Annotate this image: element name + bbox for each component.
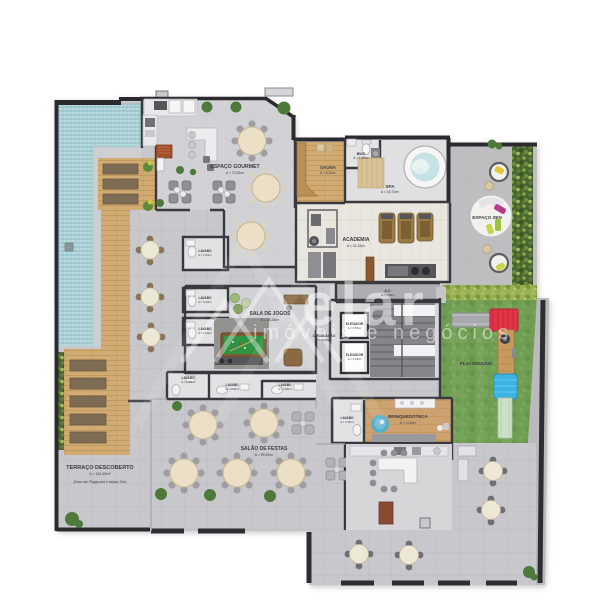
- svg-text:SPA: SPA: [386, 184, 396, 189]
- svg-text:A = 161,62m²: A = 161,62m²: [89, 472, 111, 476]
- svg-text:PLAYGROUND: PLAYGROUND: [460, 361, 493, 366]
- svg-text:A = 1,96m²: A = 1,96m²: [278, 387, 292, 391]
- svg-text:SALA DE JOGOS: SALA DE JOGOS: [250, 311, 292, 317]
- svg-text:A = 3,20m²: A = 3,20m²: [198, 300, 212, 304]
- svg-text:ACADEMIA: ACADEMIA: [343, 237, 370, 243]
- svg-text:BRINQUEDOTECA: BRINQUEDOTECA: [388, 414, 429, 419]
- svg-text:A = 1,96m²: A = 1,96m²: [353, 156, 369, 160]
- svg-text:A = 2,20m²: A = 2,20m²: [198, 331, 212, 335]
- svg-text:A = 1,55m²: A = 1,55m²: [340, 420, 354, 424]
- svg-text:ESPAÇO ZEN: ESPAÇO ZEN: [472, 215, 502, 220]
- svg-text:A = 1,59m²: A = 1,59m²: [181, 380, 195, 384]
- svg-text:A = 9,34m²: A = 9,34m²: [320, 171, 337, 175]
- svg-text:A = 1,84m²: A = 1,84m²: [198, 253, 212, 257]
- svg-text:A = 15,74m²: A = 15,74m²: [381, 190, 400, 194]
- svg-text:A = 25,28m²: A = 25,28m²: [261, 318, 280, 322]
- svg-text:A = 3,23m²: A = 3,23m²: [348, 357, 362, 361]
- svg-text:TERRAÇO DESCOBERTO: TERRAÇO DESCOBERTO: [66, 465, 134, 471]
- svg-text:A = 99,52m²: A = 99,52m²: [255, 453, 274, 457]
- svg-text:A = 1,68m²: A = 1,68m²: [381, 293, 395, 297]
- svg-text:A = 32,32m²: A = 32,32m²: [347, 244, 366, 248]
- svg-text:imóveis e negócios: imóveis e negócios: [253, 322, 513, 344]
- svg-text:SALÃO DE FESTAS: SALÃO DE FESTAS: [241, 445, 288, 452]
- svg-text:A = 12,6m²: A = 12,6m²: [400, 421, 417, 425]
- svg-text:(Área com Playground e espaço: (Área com Playground e espaço Zen): [74, 480, 127, 484]
- svg-text:A = 3,53m²: A = 3,53m²: [348, 326, 362, 330]
- svg-text:A = 70,32m²: A = 70,32m²: [226, 171, 245, 175]
- svg-text:A = 23,06m²: A = 23,06m²: [316, 338, 332, 342]
- svg-text:ESPAÇO GOURMET: ESPAÇO GOURMET: [210, 164, 260, 170]
- svg-text:SAUNA: SAUNA: [320, 165, 337, 170]
- svg-text:A = 2,56m²: A = 2,56m²: [225, 387, 239, 391]
